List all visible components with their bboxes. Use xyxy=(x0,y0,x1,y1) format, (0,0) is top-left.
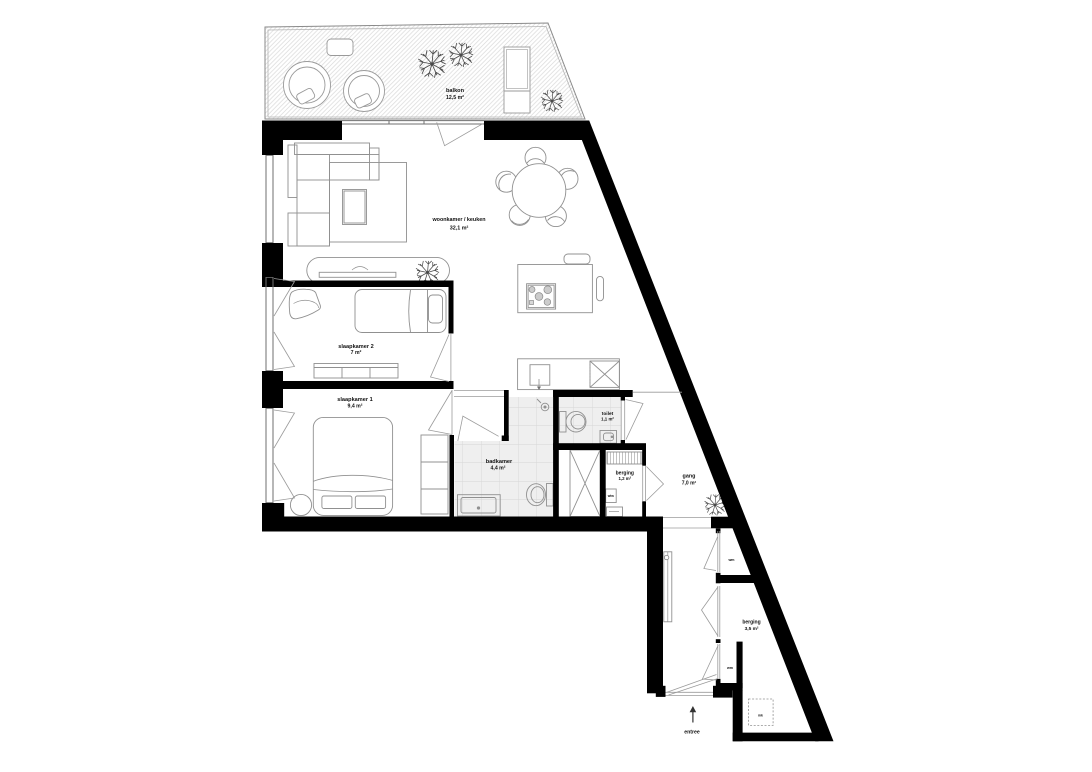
svg-text:9,4 m²: 9,4 m² xyxy=(348,403,363,409)
svg-text:berging: berging xyxy=(742,620,760,626)
svg-text:12,5 m²: 12,5 m² xyxy=(446,95,464,101)
svg-text:wm: wm xyxy=(728,558,735,562)
svg-text:badkamer: badkamer xyxy=(486,459,513,465)
svg-text:balkon: balkon xyxy=(446,88,465,94)
svg-text:slaapkamer 1: slaapkamer 1 xyxy=(337,397,372,403)
svg-text:woonkamer / keuken: woonkamer / keuken xyxy=(431,217,485,223)
svg-text:1,2 m²: 1,2 m² xyxy=(618,476,631,481)
svg-text:entree: entree xyxy=(684,730,700,736)
svg-text:mk: mk xyxy=(758,714,763,718)
svg-text:7,0 m²: 7,0 m² xyxy=(682,481,697,487)
svg-text:wm: wm xyxy=(726,666,733,670)
svg-text:wtw: wtw xyxy=(607,494,615,498)
svg-text:4,4 m²: 4,4 m² xyxy=(491,465,506,471)
svg-text:1,1 m²: 1,1 m² xyxy=(601,417,614,422)
svg-text:32,1 m²: 32,1 m² xyxy=(450,226,469,232)
svg-text:7 m²: 7 m² xyxy=(351,350,362,356)
svg-text:gang: gang xyxy=(683,474,696,480)
svg-text:3,5 m²: 3,5 m² xyxy=(745,626,759,632)
